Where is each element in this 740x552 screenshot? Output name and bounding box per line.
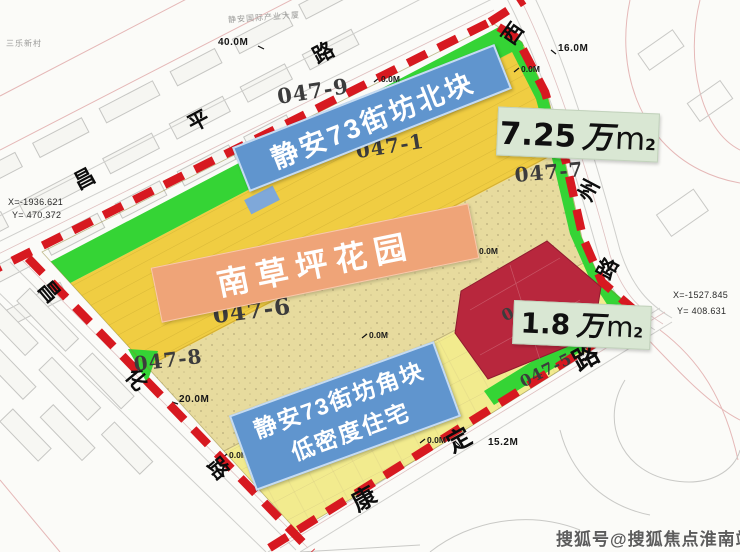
basemap-label-village: 三乐新村 xyxy=(6,38,42,49)
dim-40m: 40.0M xyxy=(218,37,248,48)
coordinate-nw-x: X=-1936.621 xyxy=(8,197,63,207)
area-corner-value: 1.8 xyxy=(520,306,571,341)
dim-15m: 15.2M xyxy=(488,437,518,448)
area-badge-corner: 1.8万m2 xyxy=(512,300,652,350)
coordinate-se-x: X=-1527.845 xyxy=(673,290,728,300)
dim-16m: 16.0M xyxy=(558,43,588,54)
dim-20m: 20.0M xyxy=(179,394,209,405)
area-north-sup: 2 xyxy=(645,136,657,154)
planning-map: 三乐新村 静安国际产业大厦 X=-1936.621 Y= 470.372 X=-… xyxy=(0,0,740,552)
area-corner-sup: 2 xyxy=(633,325,643,341)
coordinate-nw-y: Y= 470.372 xyxy=(12,210,61,220)
area-corner-unit: m xyxy=(606,310,635,344)
area-north-value: 7.25 xyxy=(499,116,577,155)
area-corner-unit-cn: 万 xyxy=(575,304,605,345)
dim-zero-4: 0.0M xyxy=(369,330,388,340)
area-badge-north: 7.25万m2 xyxy=(496,106,660,162)
dim-zero-2: 0.0M xyxy=(521,64,540,74)
area-north-unit: m xyxy=(614,121,646,158)
dim-zero-3: 0.0M xyxy=(479,246,498,256)
watermark: 搜狐号@搜狐焦点淮南站 xyxy=(556,525,740,550)
coordinate-se-y: Y= 408.631 xyxy=(677,306,726,316)
area-north-unit-cn: 万 xyxy=(581,111,614,157)
